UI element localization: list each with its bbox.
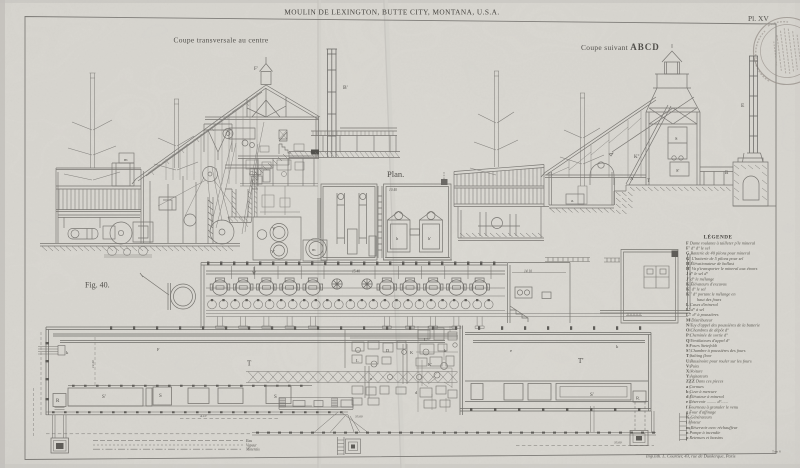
svg-text:10.40: 10.40 bbox=[389, 188, 397, 192]
svg-text:S': S' bbox=[676, 168, 680, 173]
svg-text:K'': K'' bbox=[634, 155, 640, 160]
svg-text:Minerais: Minerais bbox=[245, 448, 260, 452]
svg-text:A.10: A.10 bbox=[199, 414, 207, 418]
svg-text:15.40: 15.40 bbox=[352, 270, 360, 274]
svg-text:T: T bbox=[647, 179, 650, 184]
svg-text:S': S' bbox=[590, 393, 594, 398]
svg-text:Tom 8: Tom 8 bbox=[772, 450, 781, 454]
svg-text:Plan.: Plan. bbox=[387, 169, 404, 179]
svg-text:p Retenues et bassins: p Retenues et bassins bbox=[686, 435, 723, 440]
svg-text:MOULIN DE LEXINGTON, BUTTE: MOULIN DE LEXINGTON, BUTTE CITY, MONTANA… bbox=[284, 8, 499, 17]
svg-text:D: D bbox=[386, 348, 389, 353]
svg-text:Y': Y' bbox=[271, 249, 275, 254]
svg-text:S': S' bbox=[102, 395, 106, 400]
svg-text:14.10: 14.10 bbox=[524, 270, 532, 274]
svg-text:a.: a. bbox=[571, 198, 574, 203]
svg-text:Coupe suivant ABCD: Coupe suivant ABCD bbox=[581, 42, 660, 52]
svg-text:R.: R. bbox=[636, 396, 640, 401]
svg-text:T: T bbox=[247, 360, 252, 368]
svg-text:L: L bbox=[356, 358, 359, 363]
svg-text:h': h' bbox=[428, 236, 431, 241]
svg-text:S: S bbox=[159, 394, 162, 399]
svg-text:F': F' bbox=[254, 67, 258, 72]
svg-text:Coupe transversale au centre: Coupe transversale au centre bbox=[174, 36, 269, 45]
svg-text:S: S bbox=[274, 395, 277, 400]
svg-text:m: m bbox=[124, 157, 128, 162]
svg-text:35.60: 35.60 bbox=[355, 415, 363, 419]
svg-text:Fig. 40.: Fig. 40. bbox=[85, 281, 110, 290]
svg-text:T': T' bbox=[578, 357, 584, 365]
svg-text:35.60: 35.60 bbox=[614, 441, 622, 445]
svg-text:LÉGENDE: LÉGENDE bbox=[704, 233, 733, 241]
svg-text:K': K' bbox=[428, 362, 432, 367]
svg-text:14.40: 14.40 bbox=[91, 360, 95, 368]
svg-text:B': B' bbox=[343, 85, 348, 91]
svg-text:Pl. XV: Pl. XV bbox=[748, 14, 769, 23]
svg-text:L': L' bbox=[424, 337, 428, 342]
svg-text:e: e bbox=[510, 348, 512, 353]
svg-text:m: m bbox=[312, 247, 316, 252]
